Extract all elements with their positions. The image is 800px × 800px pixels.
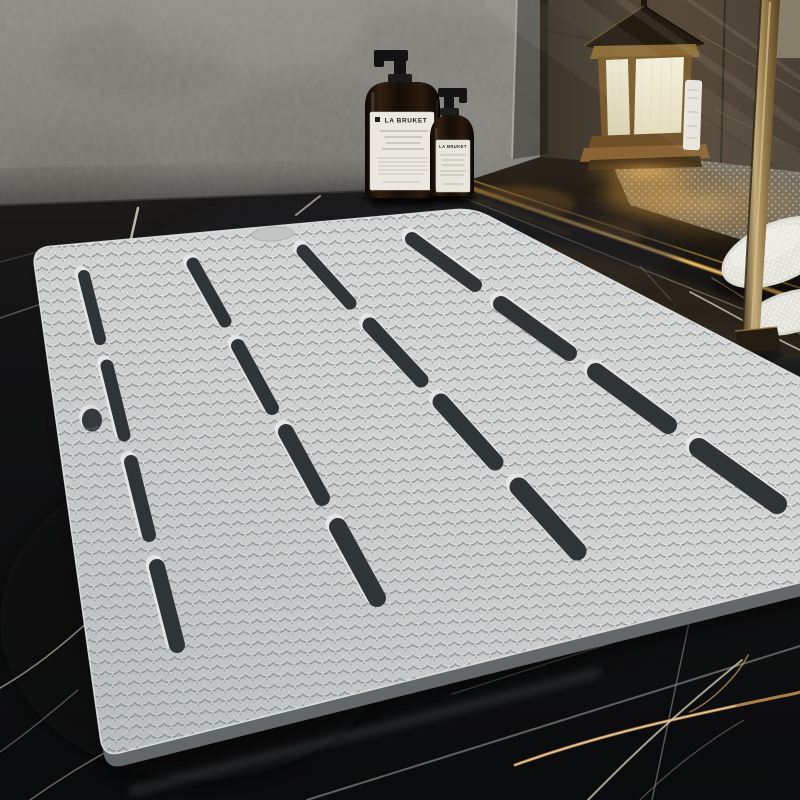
bottle-label-large: LA BRUKET [370,112,434,190]
glass-sticker [683,80,702,151]
bottle-label-small: LA BRUKET [436,140,470,192]
brand-text-large: LA BRUKET [385,118,428,125]
label-logo-mark [375,117,380,122]
lantern-glow [580,158,712,186]
product-photo: LA BRUKET LA BRUKET [0,0,800,800]
brand-text-small: LA BRUKET [439,144,467,149]
